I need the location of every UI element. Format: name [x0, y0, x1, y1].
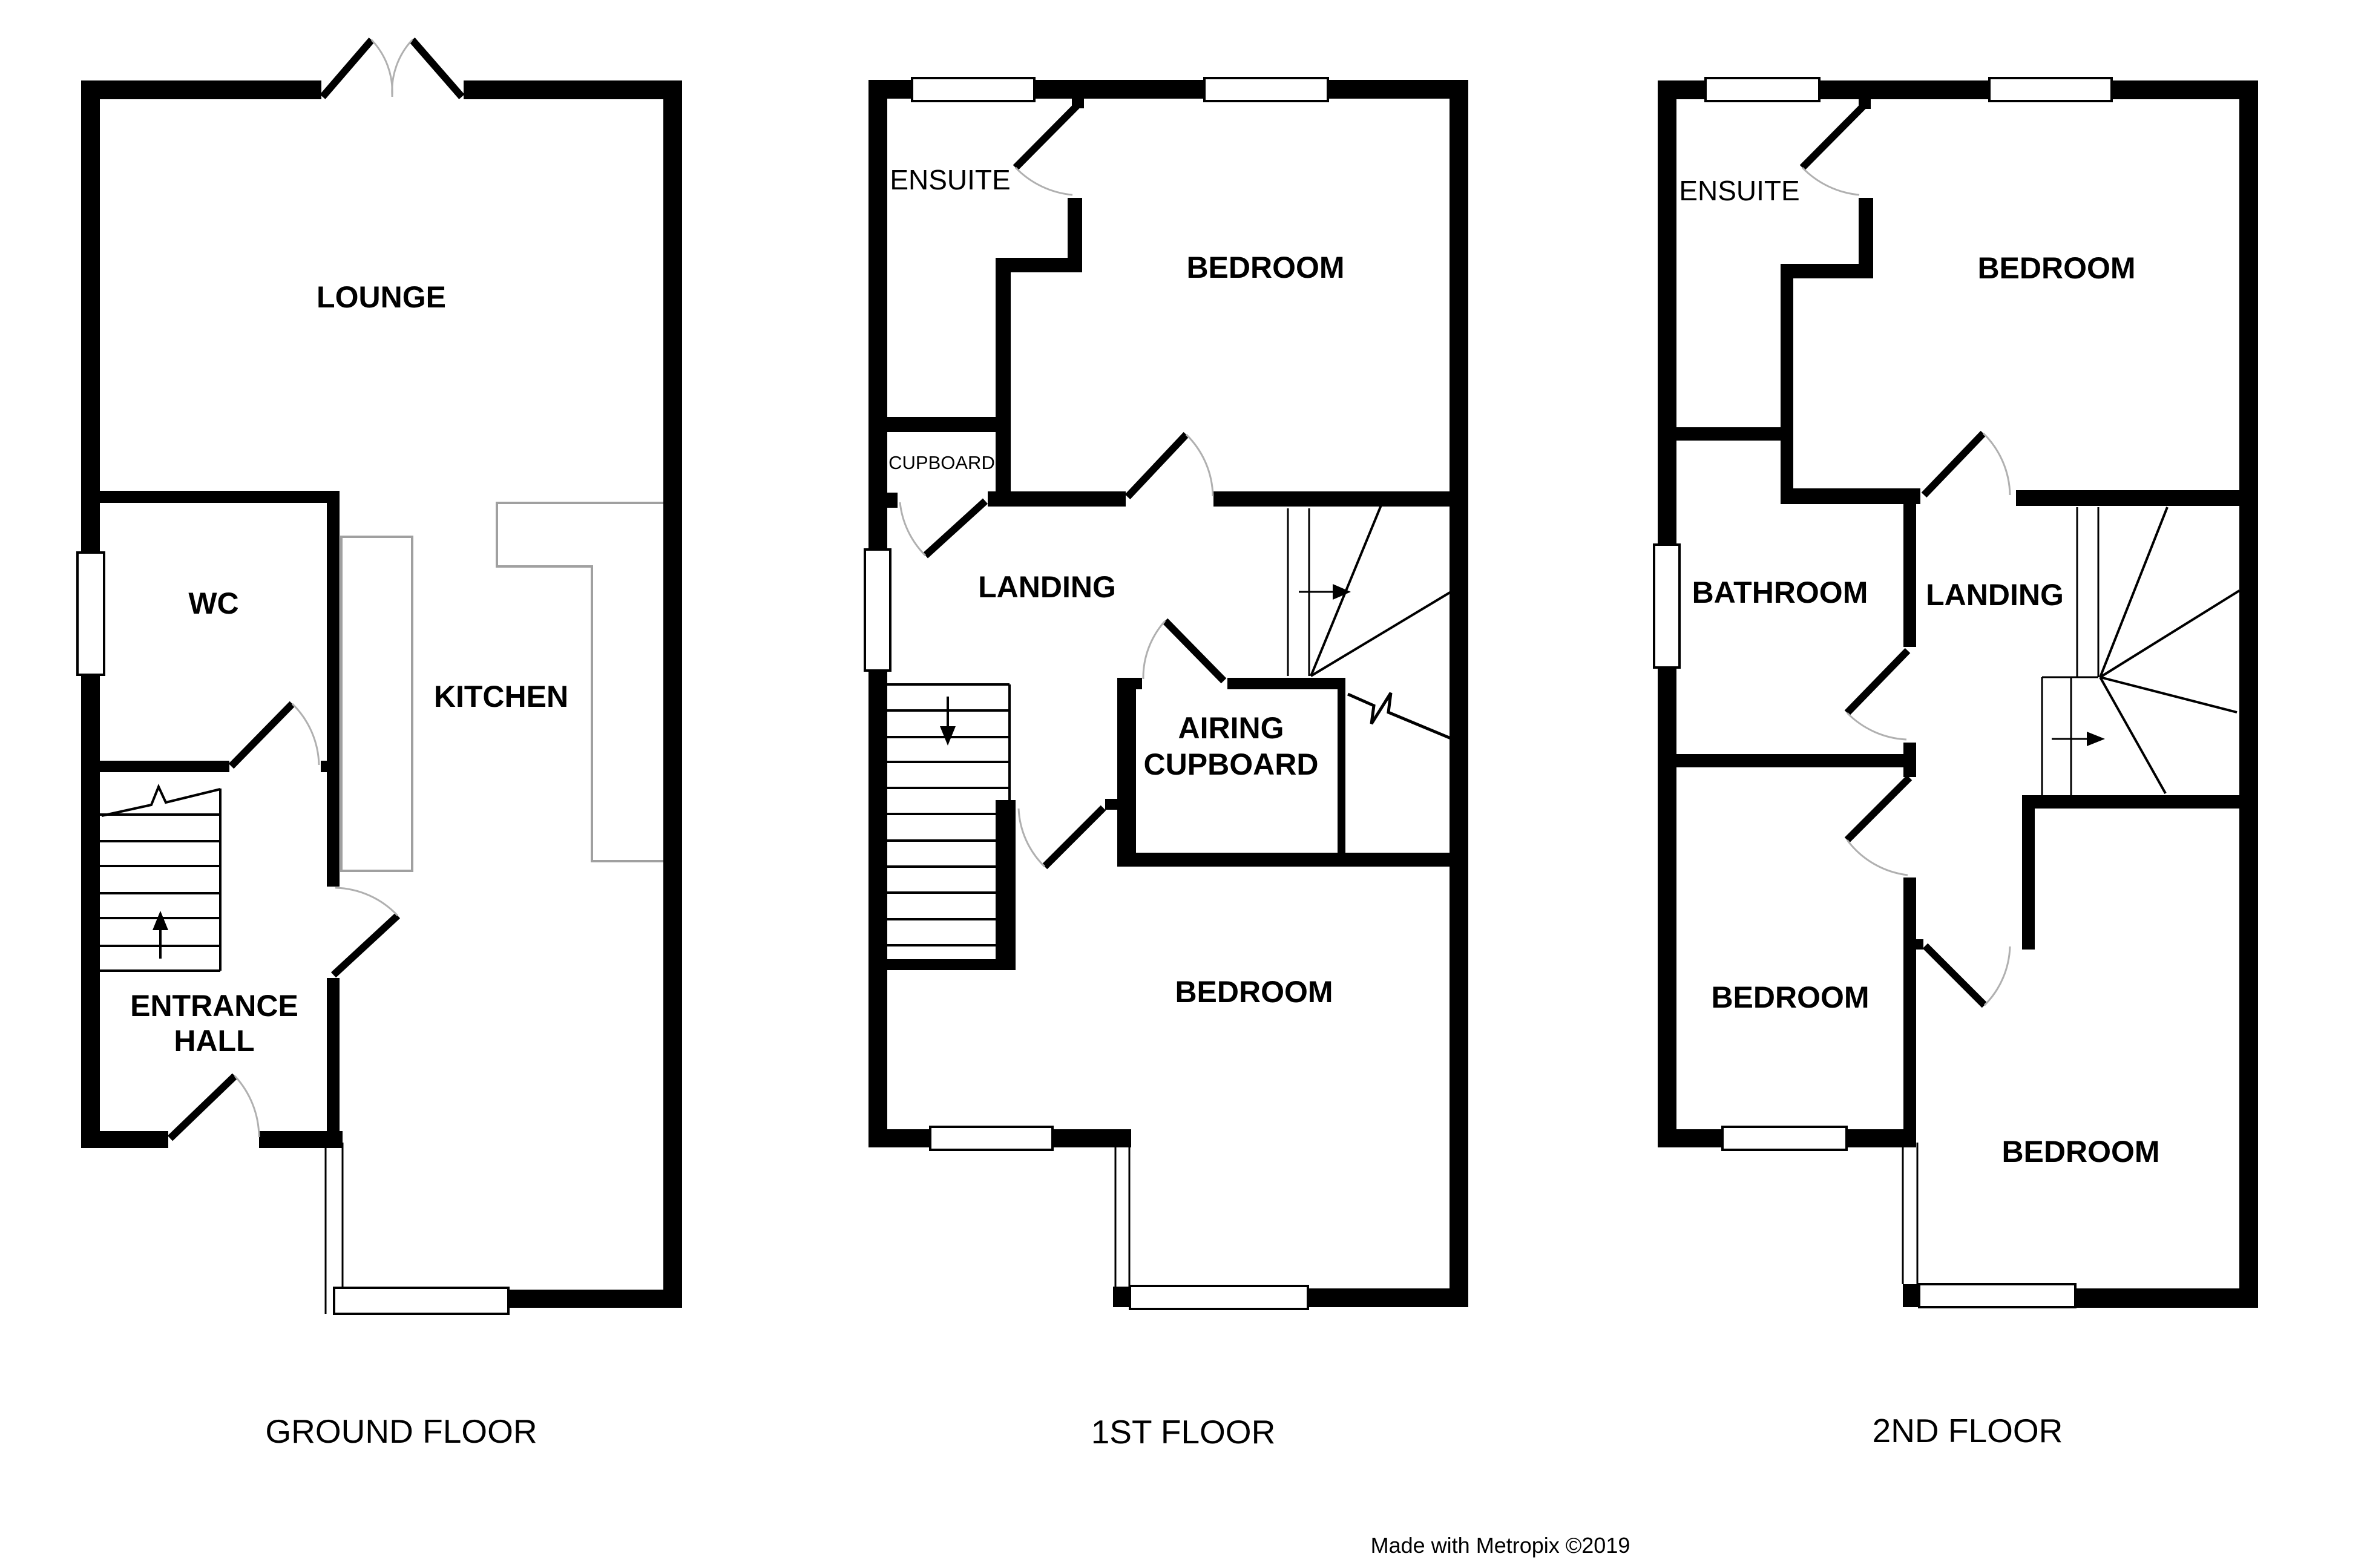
svg-text:ENSUITE: ENSUITE — [890, 164, 1010, 195]
svg-text:KITCHEN: KITCHEN — [434, 680, 568, 713]
svg-text:WC: WC — [188, 586, 238, 620]
svg-text:CUPBOARD: CUPBOARD — [1144, 747, 1319, 781]
svg-text:Made with Metropix ©2019: Made with Metropix ©2019 — [1371, 1533, 1630, 1558]
svg-text:ENSUITE: ENSUITE — [1679, 175, 1799, 206]
svg-text:AIRING: AIRING — [1178, 711, 1284, 745]
svg-text:1ST FLOOR: 1ST FLOOR — [1091, 1413, 1276, 1451]
svg-text:BEDROOM: BEDROOM — [1711, 980, 1869, 1014]
svg-text:CUPBOARD: CUPBOARD — [888, 452, 995, 473]
svg-text:BEDROOM: BEDROOM — [2001, 1135, 2159, 1169]
svg-text:BEDROOM: BEDROOM — [1977, 251, 2135, 285]
svg-text:LANDING: LANDING — [978, 570, 1116, 604]
svg-text:LANDING: LANDING — [1926, 578, 2064, 612]
svg-text:ENTRANCE: ENTRANCE — [130, 989, 298, 1023]
svg-text:HALL: HALL — [174, 1024, 254, 1058]
svg-text:2ND FLOOR: 2ND FLOOR — [1873, 1412, 2063, 1449]
svg-text:BEDROOM: BEDROOM — [1175, 975, 1333, 1009]
svg-text:LOUNGE: LOUNGE — [317, 280, 446, 314]
svg-text:BATHROOM: BATHROOM — [1692, 576, 1868, 609]
svg-text:BEDROOM: BEDROOM — [1186, 251, 1344, 284]
svg-text:GROUND FLOOR: GROUND FLOOR — [265, 1412, 537, 1450]
